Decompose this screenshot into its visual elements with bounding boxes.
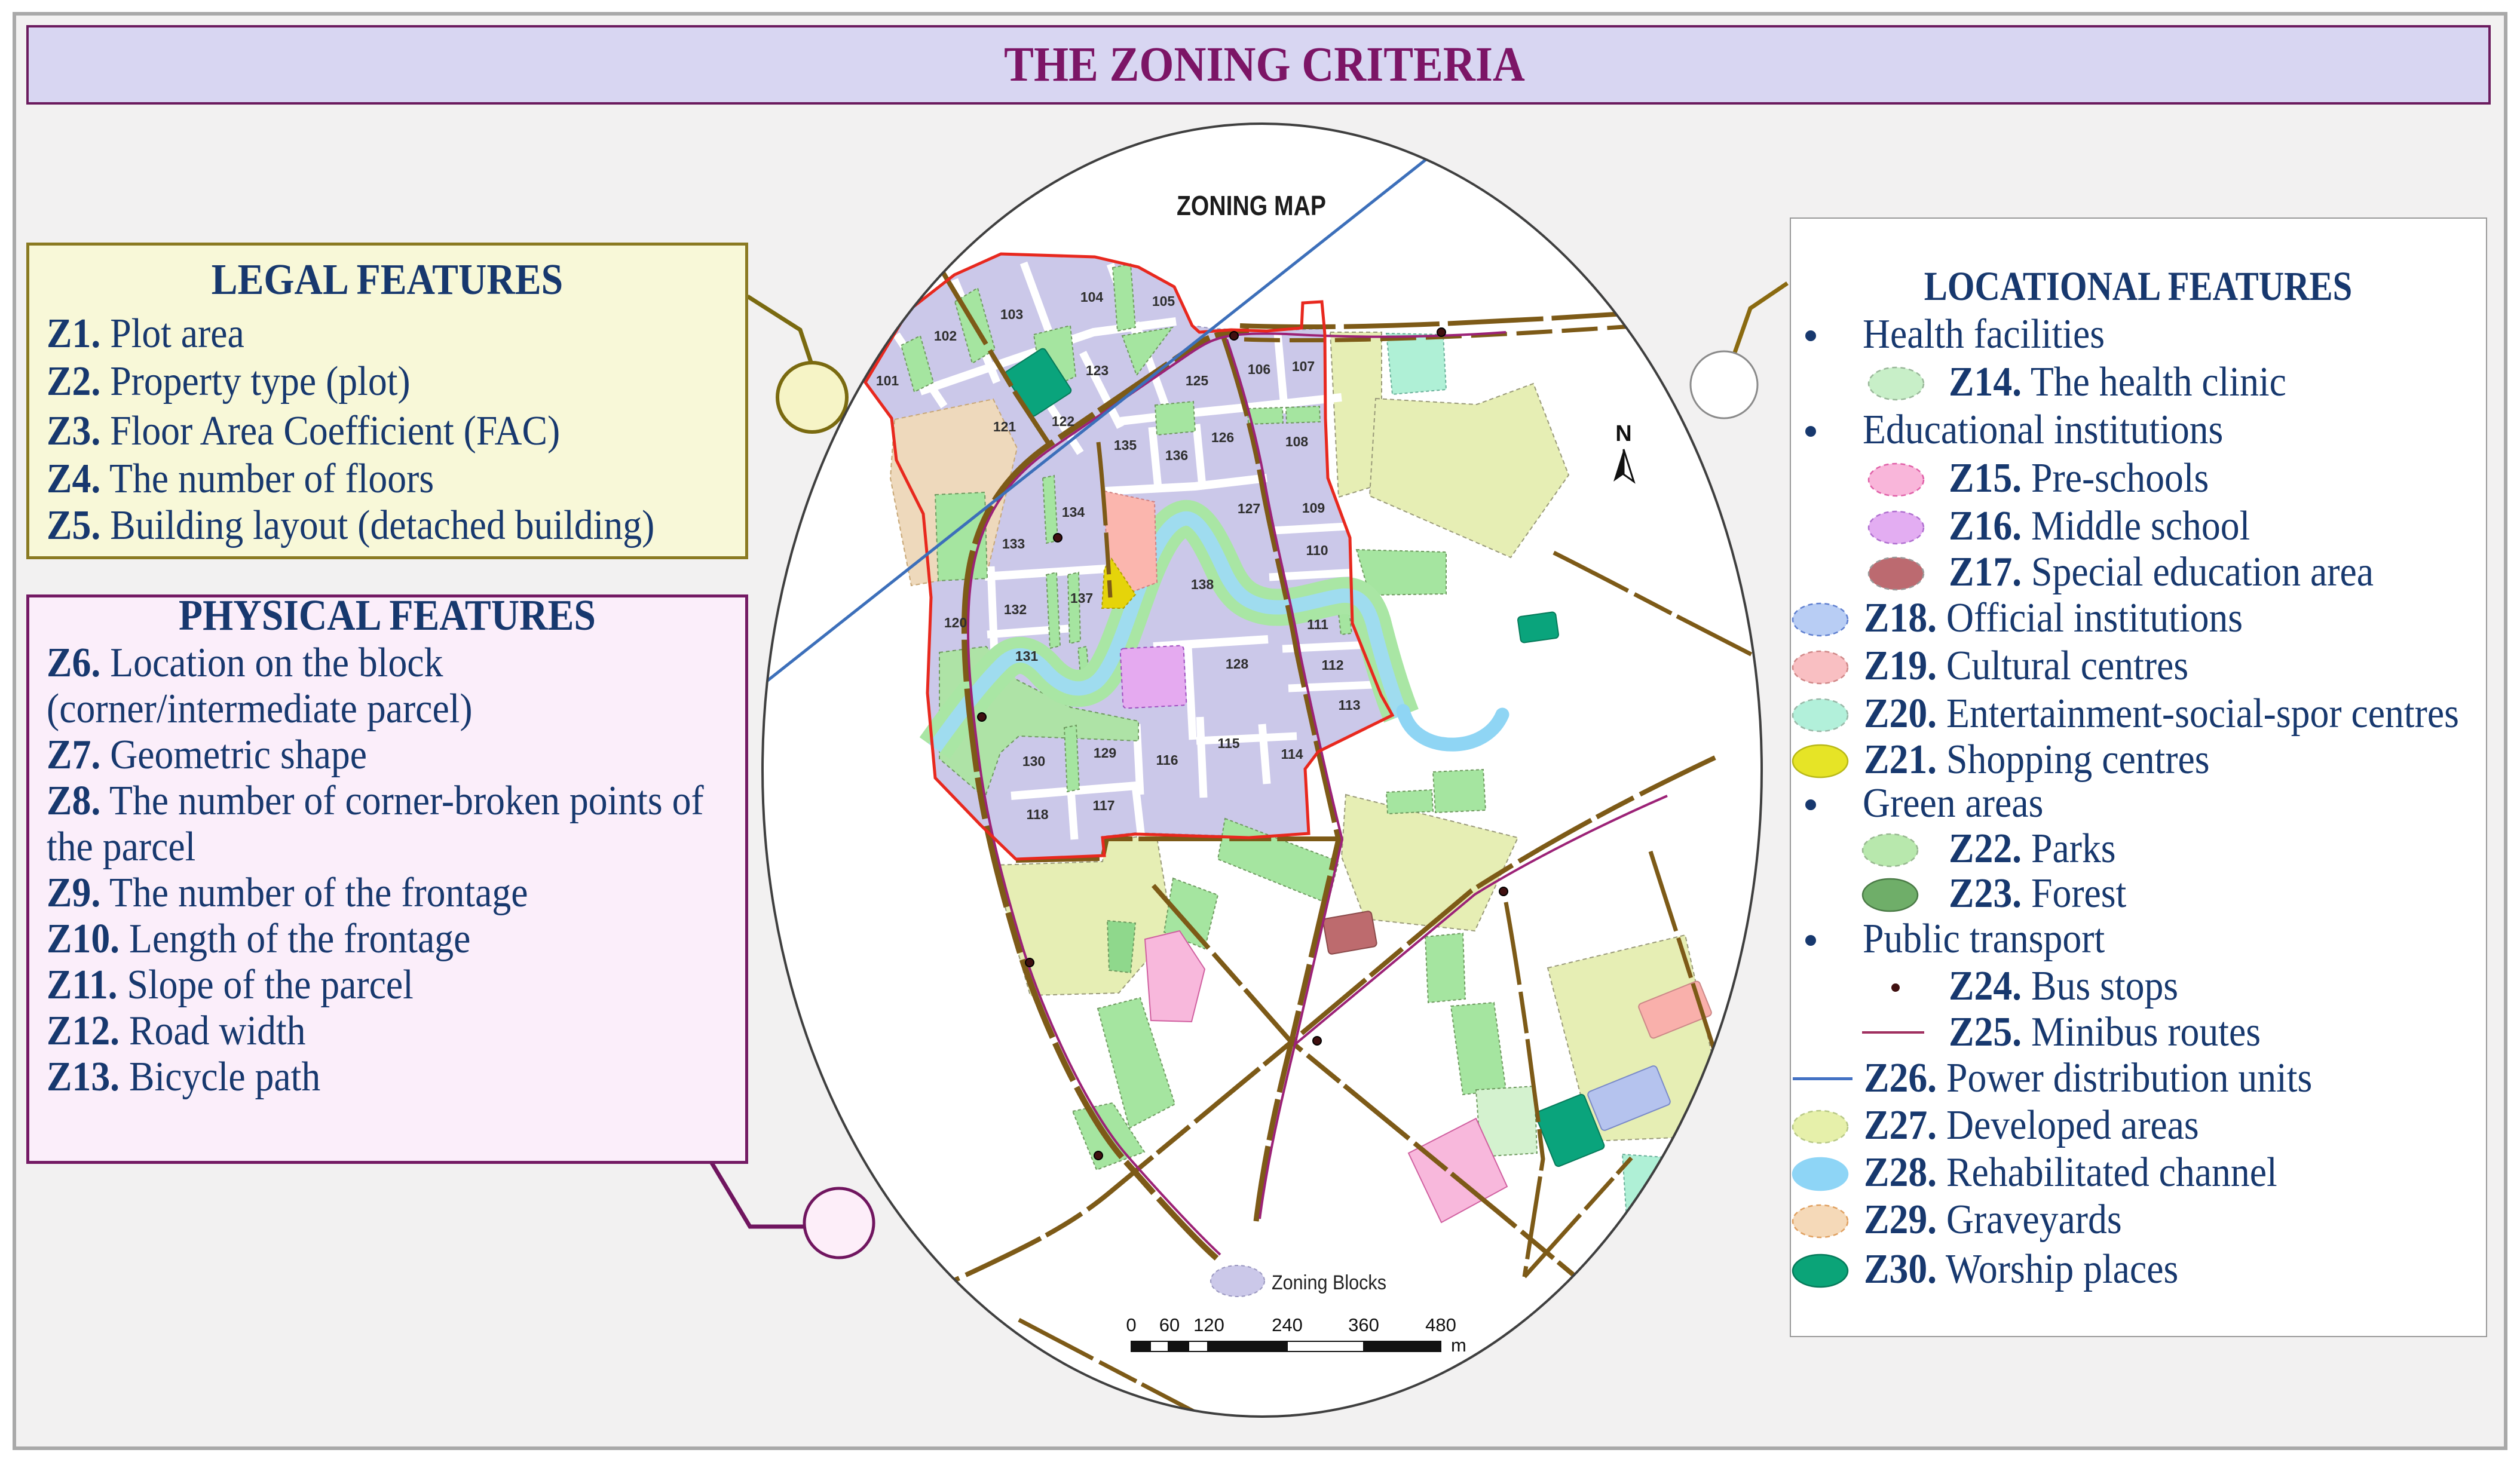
svg-text:137: 137 bbox=[1070, 590, 1093, 606]
svg-text:115: 115 bbox=[1217, 735, 1239, 751]
svg-text:134: 134 bbox=[1062, 504, 1085, 520]
svg-text:138: 138 bbox=[1191, 577, 1214, 592]
svg-text:60: 60 bbox=[1159, 1314, 1180, 1335]
svg-text:131: 131 bbox=[1015, 648, 1039, 664]
svg-text:129: 129 bbox=[1094, 745, 1116, 761]
svg-text:116: 116 bbox=[1156, 752, 1178, 768]
svg-text:Zoning Blocks: Zoning Blocks bbox=[1272, 1271, 1386, 1294]
svg-text:132: 132 bbox=[1004, 602, 1027, 617]
svg-text:114: 114 bbox=[1281, 746, 1303, 762]
svg-text:120: 120 bbox=[944, 615, 967, 630]
svg-text:m: m bbox=[1451, 1335, 1466, 1356]
svg-text:133: 133 bbox=[1002, 536, 1025, 551]
svg-text:123: 123 bbox=[1086, 363, 1109, 378]
svg-text:0: 0 bbox=[1126, 1314, 1136, 1335]
svg-text:126: 126 bbox=[1211, 430, 1234, 445]
svg-text:125: 125 bbox=[1186, 373, 1209, 388]
svg-text:480: 480 bbox=[1425, 1314, 1456, 1335]
svg-text:102: 102 bbox=[934, 328, 957, 344]
svg-text:ZONING MAP: ZONING MAP bbox=[1177, 190, 1326, 221]
svg-text:112: 112 bbox=[1321, 657, 1343, 673]
svg-text:136: 136 bbox=[1165, 448, 1188, 463]
svg-text:N: N bbox=[1615, 421, 1631, 446]
svg-text:103: 103 bbox=[1000, 307, 1023, 322]
svg-text:128: 128 bbox=[1226, 656, 1249, 672]
svg-text:108: 108 bbox=[1285, 434, 1309, 449]
svg-text:113: 113 bbox=[1338, 697, 1360, 713]
svg-text:106: 106 bbox=[1248, 361, 1270, 377]
svg-text:101: 101 bbox=[876, 373, 899, 388]
svg-text:117: 117 bbox=[1092, 798, 1114, 813]
svg-text:130: 130 bbox=[1022, 753, 1045, 769]
svg-text:121: 121 bbox=[993, 419, 1016, 434]
svg-text:105: 105 bbox=[1152, 293, 1175, 309]
svg-text:109: 109 bbox=[1302, 500, 1325, 516]
svg-text:104: 104 bbox=[1080, 289, 1104, 305]
svg-text:118: 118 bbox=[1026, 807, 1048, 822]
svg-text:110: 110 bbox=[1306, 543, 1328, 558]
svg-text:107: 107 bbox=[1292, 358, 1315, 374]
svg-text:127: 127 bbox=[1238, 501, 1260, 516]
svg-text:111: 111 bbox=[1307, 617, 1328, 632]
svg-text:240: 240 bbox=[1272, 1314, 1303, 1335]
svg-text:122: 122 bbox=[1052, 413, 1074, 429]
svg-text:360: 360 bbox=[1348, 1314, 1379, 1335]
svg-text:135: 135 bbox=[1114, 437, 1137, 453]
svg-text:120: 120 bbox=[1193, 1314, 1224, 1335]
